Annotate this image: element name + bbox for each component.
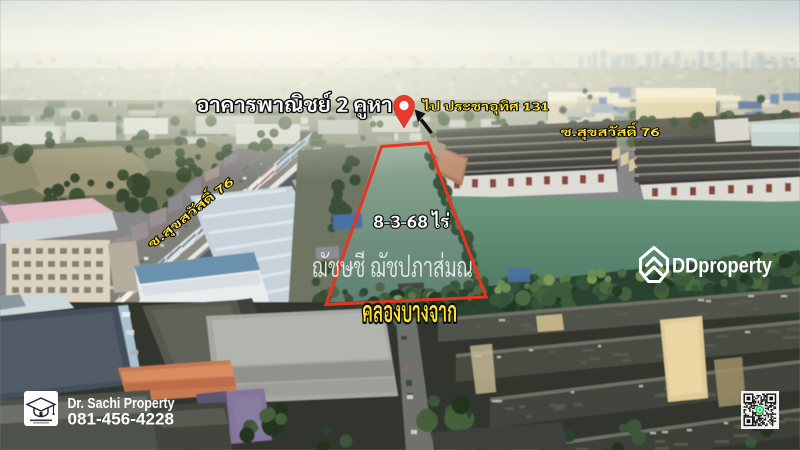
svg-text:081-456-4228: 081-456-4228: [68, 410, 175, 429]
svg-text:DDproperty: DDproperty: [672, 255, 772, 278]
